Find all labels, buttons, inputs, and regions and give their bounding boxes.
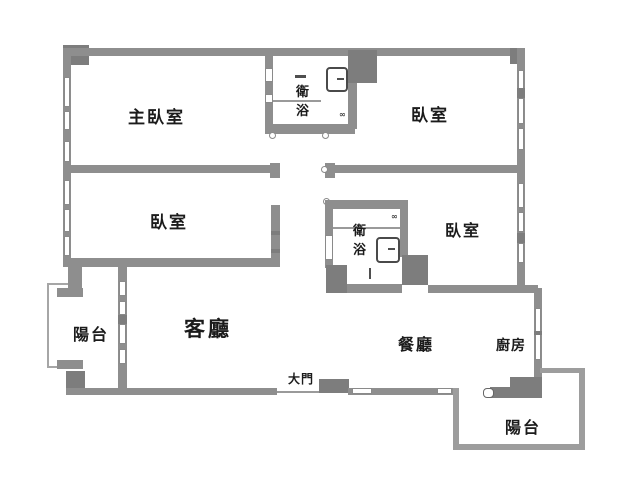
door-stop-mark: ∞ xyxy=(391,212,398,221)
balcony-br-railing-right xyxy=(579,368,585,450)
wall-balcony-west xyxy=(68,267,82,295)
wall-bathroom-top-east xyxy=(348,83,357,129)
window xyxy=(518,98,524,124)
window xyxy=(119,349,126,364)
entrance-door-slab xyxy=(319,379,349,393)
wall-pier xyxy=(517,233,525,243)
window xyxy=(64,209,70,232)
door-opening-line xyxy=(277,391,320,393)
window xyxy=(265,94,273,103)
balcony-door xyxy=(483,388,494,398)
wall-bedrooms-divider-left xyxy=(63,165,271,173)
wall-tick xyxy=(534,331,542,335)
window xyxy=(64,180,70,205)
door-jamb xyxy=(270,163,280,178)
label-balcony-left: 陽台 xyxy=(73,321,109,345)
wall-tick xyxy=(271,249,280,253)
wall-pier xyxy=(517,88,525,98)
wall-balcony-step xyxy=(57,360,83,369)
label-entrance: 大門 xyxy=(288,370,314,387)
label-master-bedroom: 主臥室 xyxy=(128,103,185,128)
fixture-detail xyxy=(388,248,395,250)
wall-block xyxy=(402,255,428,285)
label-bedroom-top-right: 臥室 xyxy=(411,101,449,126)
wall-block xyxy=(326,265,347,293)
window xyxy=(64,236,70,256)
window xyxy=(518,212,524,232)
wall-top xyxy=(63,48,518,56)
wall-tick xyxy=(271,231,280,235)
label-bathroom-mid: 衛浴 xyxy=(352,223,367,261)
label-kitchen: 廚房 xyxy=(496,335,526,355)
window xyxy=(518,128,524,150)
door-hinge xyxy=(269,132,276,139)
window xyxy=(119,281,126,296)
toilet-fixture xyxy=(376,237,400,263)
fixture-detail xyxy=(337,78,344,80)
mirror-mark xyxy=(295,75,306,78)
label-living-room: 客廳 xyxy=(184,313,232,343)
duct-shaft xyxy=(348,50,377,83)
window xyxy=(64,77,70,107)
window xyxy=(64,141,70,162)
floor-plan: ∞ ∞ 主臥室 臥室 臥室 臥室 衛浴 衛浴 客廳 餐廳 廚房 陽台 陽台 大門 xyxy=(0,0,640,480)
window xyxy=(437,388,452,394)
wall-bedroom-mid-right-south xyxy=(428,285,538,293)
wall-bathroom-mid-north xyxy=(325,200,408,209)
door-hinge xyxy=(322,132,329,139)
door-stop-mark: ∞ xyxy=(339,110,346,119)
label-bathroom-top: 衛浴 xyxy=(295,84,310,122)
window xyxy=(518,243,524,263)
label-bedroom-mid-right: 臥室 xyxy=(445,217,481,241)
door-hinge xyxy=(321,166,328,173)
label-bedroom-mid-left: 臥室 xyxy=(150,208,188,233)
wall-bathroom-top-south xyxy=(267,124,355,134)
window xyxy=(352,388,372,394)
wall-pier xyxy=(118,315,127,324)
wall-bathroom-mid-east xyxy=(400,200,408,257)
wall-bedroom-mid-left-south xyxy=(63,258,280,267)
wall-bedrooms-divider-right xyxy=(335,165,518,173)
label-dining-room: 餐廳 xyxy=(398,331,434,355)
window xyxy=(119,324,126,344)
door-mark xyxy=(369,268,371,279)
window xyxy=(119,301,126,315)
bathroom-door xyxy=(325,235,333,260)
balcony-br-railing-left xyxy=(453,388,459,450)
wall-bathroom-mid-south xyxy=(347,284,402,293)
window xyxy=(518,183,524,208)
window xyxy=(64,111,70,130)
wall-kitchen-corner xyxy=(510,377,542,398)
label-balcony-bottom-right: 陽台 xyxy=(505,414,541,438)
bathroom-door xyxy=(265,68,273,82)
wall-bottom-left xyxy=(66,388,277,395)
balcony-br-railing-bottom xyxy=(453,444,585,450)
